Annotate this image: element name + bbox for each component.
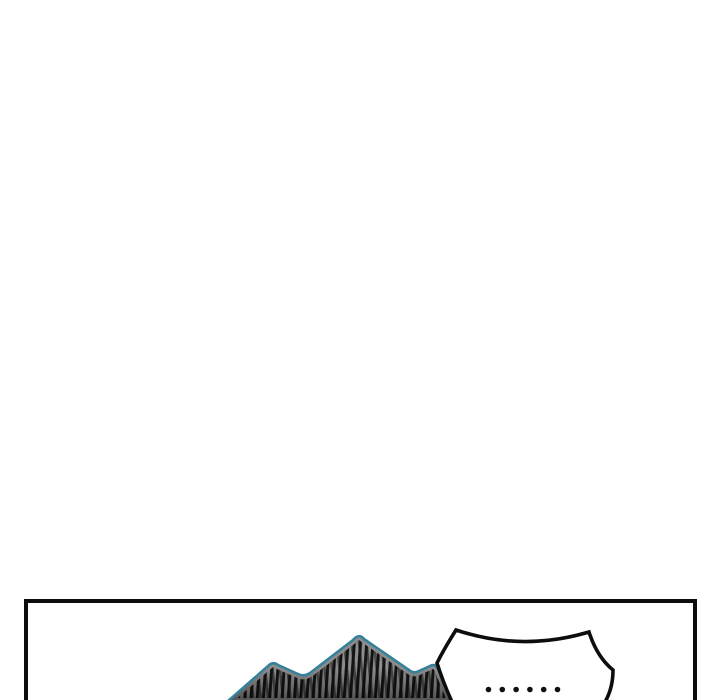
ellipsis-dot (513, 687, 519, 693)
ellipsis-dot (555, 687, 561, 693)
ellipsis-dot (527, 687, 533, 693)
speech-bubble-shape (437, 630, 613, 700)
ellipsis-dot (500, 687, 506, 693)
comic-panel (24, 599, 697, 700)
ellipsis-dot (486, 687, 492, 693)
hair-shading (227, 636, 452, 700)
panel-gutter (0, 0, 720, 599)
speech-bubble (437, 630, 613, 700)
ellipsis-dot (541, 687, 547, 693)
character-hair (227, 636, 452, 700)
panel-artwork (28, 603, 693, 700)
comic-page (0, 0, 720, 700)
